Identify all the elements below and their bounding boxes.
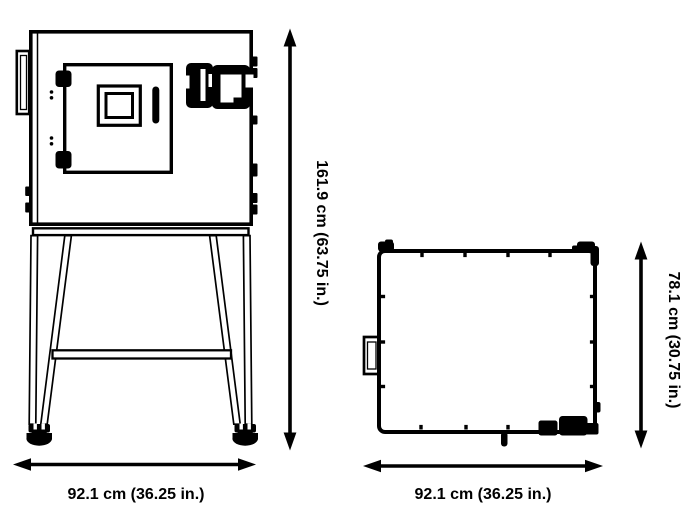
top-width-arrow xyxy=(363,460,603,473)
arrowhead-right xyxy=(238,458,256,471)
front-view-drawing xyxy=(17,32,258,446)
front-width-arrow xyxy=(13,458,256,471)
chamber-door xyxy=(50,65,172,173)
front-height-label: 161.9 cm (63.75 in.) xyxy=(310,148,332,318)
top-height-arrow xyxy=(635,242,648,449)
arrowhead-left xyxy=(363,460,381,473)
line-art-layer xyxy=(0,0,700,519)
leveling-feet xyxy=(26,424,258,446)
stand-leg-front-left xyxy=(29,236,37,425)
arrowhead-right xyxy=(585,460,603,473)
foot-right xyxy=(232,424,258,446)
stand-top-rail xyxy=(33,228,249,235)
latch-assembly xyxy=(183,63,254,109)
front-height-arrow xyxy=(284,29,297,451)
stand-shelf xyxy=(53,350,232,358)
door-hinge-bottom xyxy=(56,151,72,169)
arrowhead-up xyxy=(284,29,297,47)
arrowhead-up xyxy=(635,242,648,260)
side-bracket xyxy=(17,51,29,114)
arrowhead-left xyxy=(13,458,31,471)
stand-leg-rear-left xyxy=(41,236,72,425)
door-handle xyxy=(152,87,159,124)
door-hinge-top xyxy=(56,71,72,88)
top-width-label: 92.1 cm (36.25 in.) xyxy=(383,484,583,506)
arrowhead-down xyxy=(284,433,297,451)
top-height-label: 78.1 cm (30.75 in.) xyxy=(662,260,684,420)
front-width-label: 92.1 cm (36.25 in.) xyxy=(36,484,236,506)
bottom-port xyxy=(501,432,508,447)
arrowhead-down xyxy=(635,431,648,449)
foot-left xyxy=(26,424,52,446)
top-view-drawing xyxy=(364,240,601,447)
top-view-body xyxy=(379,251,595,432)
stand xyxy=(29,228,252,424)
viewing-window xyxy=(98,86,140,125)
stand-leg-rear-right xyxy=(210,236,241,425)
stand-leg-front-right xyxy=(243,236,251,425)
diagram-canvas: 161.9 cm (63.75 in.) 92.1 cm (36.25 in.)… xyxy=(0,0,700,519)
